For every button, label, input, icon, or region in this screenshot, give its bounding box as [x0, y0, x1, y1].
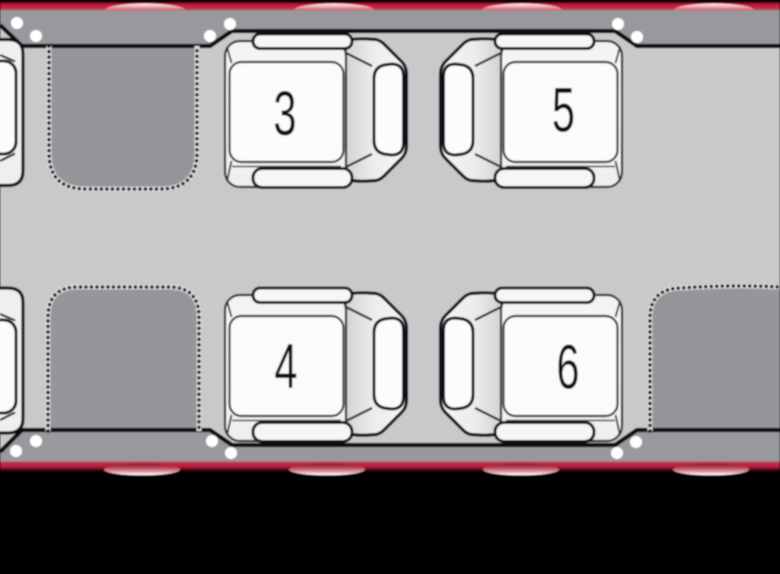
svg-text:3: 3	[273, 80, 296, 150]
svg-text:6: 6	[556, 333, 579, 403]
svg-text:5: 5	[552, 76, 575, 146]
svg-text:4: 4	[274, 333, 297, 403]
